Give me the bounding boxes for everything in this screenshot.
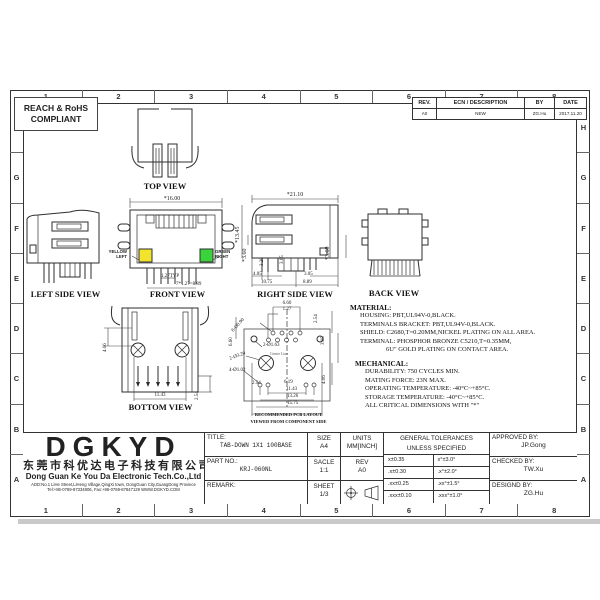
company-name-cn: 东莞市科优达电子科技有限公司 <box>23 460 204 472</box>
pcb-layout-caption-line1: RECOMMENDED PCB LAYOUT <box>226 412 351 417</box>
bottom-view-drawing <box>100 300 222 406</box>
units-value: MM[INCH] <box>341 443 383 450</box>
right-side-view-caption: RIGHT SIDE VIEW <box>240 289 350 299</box>
tolerance-row: .xx±0.25 .xx°±1.5° <box>384 479 489 491</box>
units-cell: UNITS MM[INCH] <box>341 433 383 457</box>
dim-right-320: 3.20 <box>260 257 265 266</box>
company-name-en: Dong Guan Ke You Da Electronic Tech.Co.,… <box>23 472 204 481</box>
by-value: ZG.Hu <box>525 109 555 119</box>
signatures-column: APPROVED BY: JP.Gong CHECKED BY: TW.Xu D… <box>490 433 577 504</box>
title-part-column: TITLE: TAB-DOWN 1X1 100BASE PART NO.: KR… <box>205 433 308 504</box>
checked-cell: CHECKED BY: TW.Xu <box>490 457 577 481</box>
rev-header: REV. <box>413 98 437 108</box>
third-angle-projection-icon <box>342 483 382 503</box>
title-row: TITLE: TAB-DOWN 1X1 100BASE <box>205 433 307 457</box>
led-right-label-line2: RIGHT <box>215 254 242 259</box>
revision-table: REV. ECN / DESCRIPTION BY DATE A0 NEW ZG… <box>412 97 587 120</box>
top-view-drawing <box>125 104 205 184</box>
rev-label: REV <box>341 457 383 466</box>
checked-label: CHECKED BY: <box>490 457 577 465</box>
title-label: TITLE: <box>205 433 307 441</box>
dim-pcb-619: 6.19 <box>284 380 293 385</box>
company-block: DGKYD 东莞市科优达电子科技有限公司 Dong Guan Ke You Da… <box>23 433 205 504</box>
material-line: TERMINALS BRACKET: PBT,UL94V-0,BLACK. <box>350 321 582 330</box>
mechanical-notes: MECHANICAL: DURABILITY: 750 CYCLES MIN. … <box>355 360 583 411</box>
dim-bottom-1143: 11.43 <box>145 393 175 398</box>
back-view-caption: BACK VIEW <box>358 288 430 298</box>
dim-bottom-254: 2.54 <box>195 391 200 400</box>
designed-cell: DESIGND BY: ZG.Hu <box>490 481 577 505</box>
tolerance-cell: .xx°±1.5° <box>434 479 489 490</box>
ecn-value: NEW <box>437 109 525 119</box>
rev-value-cell: A0 <box>341 467 383 474</box>
front-view-drawing <box>112 194 242 296</box>
sheet-value: 1/3 <box>308 491 340 498</box>
rev-cell: REV A0 <box>341 457 383 481</box>
centre-line-label: Centre Line <box>270 352 288 356</box>
dim-right-width: *21.10 <box>265 192 325 198</box>
tolerance-cell: .xxx±0.10 <box>384 491 434 503</box>
date-header: DATE <box>555 98 586 108</box>
mechanical-line: DURABILITY: 750 CYCLES MIN. <box>355 368 583 377</box>
tolerance-cell: .x°±2.0° <box>434 467 489 478</box>
label-pcb-2holes-163: 2-Ø1.63 <box>263 343 280 348</box>
dim-pcb-1575: 15.75 <box>287 401 298 406</box>
units-rev-column: UNITS MM[INCH] REV A0 <box>341 433 384 504</box>
dim-pcb-1326: 13.26 <box>287 394 298 399</box>
remark-row: REMARK: <box>205 481 307 505</box>
border-row-label: G <box>10 153 23 203</box>
dim-pcb-127: 1.27 <box>272 307 302 312</box>
border-row-label: E <box>577 254 590 304</box>
tolerances-column: GENERAL TOLERANCES UNLESS SPECIFIED x±0.… <box>384 433 490 504</box>
approved-label: APPROVED BY: <box>490 433 577 441</box>
back-view-drawing <box>358 202 430 286</box>
dim-front-width: *16.00 <box>142 196 202 202</box>
border-col-label: 4 <box>228 90 301 103</box>
border-col-label: 3 <box>155 504 228 517</box>
dim-bottom-406: 4.06 <box>103 343 108 352</box>
mechanical-line: MATING FORCE: 23N MAX. <box>355 377 583 386</box>
dim-right-365: 3.65 <box>280 255 285 264</box>
size-label: SIZE <box>308 433 340 442</box>
dim-pcb-1143: 11.43 <box>286 387 297 392</box>
dim-pcb-305: 3.05 <box>321 336 326 345</box>
border-row-label: G <box>577 153 590 203</box>
dim-right-360-left: *3.60 <box>242 249 248 263</box>
part-no-value: KRJ-060NL <box>205 466 307 473</box>
border-col-label: 1 <box>10 504 83 517</box>
left-side-view-caption: LEFT SIDE VIEW <box>18 289 113 299</box>
tolerances-header: GENERAL TOLERANCES UNLESS SPECIFIED <box>384 433 489 455</box>
tolerance-row: x±0.35 x°±3.0° <box>384 455 489 467</box>
dim-pcb-660-top: 6.60 <box>272 301 302 306</box>
sheet-shadow <box>18 519 600 524</box>
mechanical-line: OPERATING TEMPERATURE: -40°C~+85°C. <box>355 385 583 394</box>
border-col-label: 3 <box>155 90 228 103</box>
dim-pcb-660-left: 6.60 <box>229 337 234 346</box>
right-side-view-drawing <box>234 192 356 296</box>
material-line: TERMINAL: PHOSPHOR BRONZE C5210,T=0.35MM… <box>350 338 582 347</box>
designed-value: ZG.Hu <box>490 490 577 497</box>
remark-label: REMARK: <box>205 481 307 489</box>
dim-pcb-254-bottom: 2.54 <box>252 381 261 386</box>
compliance-line1: REACH & RoHS <box>24 103 88 114</box>
title-block: DGKYD 东莞市科优达电子科技有限公司 Dong Guan Ke You Da… <box>23 432 577 504</box>
part-no-label: PART NO.: <box>205 457 307 465</box>
engineering-drawing-sheet: 12345678 12345678 HGFEDCBA HGFEDCBA REAC… <box>0 0 600 600</box>
tolerances-header-line1: GENERAL TOLERANCES <box>384 434 489 444</box>
by-header: BY <box>525 98 555 108</box>
led-left-label-line2: LEFT <box>100 254 127 259</box>
revision-data-row: A0 NEW ZG.Hu 2017.11.20 <box>413 109 586 119</box>
scale-value: 1:1 <box>308 467 340 474</box>
size-value: A4 <box>308 443 340 450</box>
designed-label: DESIGND BY: <box>490 481 577 489</box>
scale-cell: SACLE 1:1 <box>308 457 340 481</box>
company-logo: DGKYD <box>23 434 204 460</box>
tolerance-row: .x±0.30 .x°±2.0° <box>384 467 489 479</box>
sheet-cell: SHEET 1/3 <box>308 481 340 505</box>
border-rows-left: HGFEDCBA <box>10 103 23 504</box>
projection-symbol-cell <box>341 481 383 505</box>
compliance-stamp: REACH & RoHS COMPLIANT <box>14 97 98 131</box>
bottom-view-caption: BOTTOM VIEW <box>108 402 213 412</box>
dim-right-1075: 10.75 <box>261 280 272 285</box>
tolerance-cell: x°±3.0° <box>434 455 489 466</box>
label-pcb-4holes-102: 4-Ø1.02 <box>229 368 246 373</box>
material-notes: MATERIAL: HOUSING: PBT,UL94V-0,BLACK. TE… <box>350 304 582 355</box>
mechanical-line: ALL CRITICAL DIMENSIONS WITH "*" <box>355 402 583 411</box>
mechanical-line: STORAGE TEMPERATURE: -40°C~+85°C. <box>355 394 583 403</box>
border-row-label: C <box>10 354 23 404</box>
led-left-label: YELLOW LEFT <box>100 249 127 259</box>
border-col-label: 8 <box>518 504 590 517</box>
dim-front-pitch: 1.27TYP <box>161 274 179 279</box>
dim-right-height: *13.45 <box>235 227 241 244</box>
sheet-label: SHEET <box>308 481 340 490</box>
tolerance-cell: x±0.35 <box>384 455 434 466</box>
left-side-view-drawing <box>18 203 113 288</box>
top-view-caption: TOP VIEW <box>125 181 205 191</box>
dim-front-span: 7*1.27=8.89 <box>176 282 201 287</box>
material-heading: MATERIAL: <box>350 304 582 312</box>
border-row-label: B <box>577 405 590 455</box>
title-value: TAB-DOWN 1X1 100BASE <box>205 442 307 449</box>
border-col-label: 4 <box>228 504 301 517</box>
ecn-header: ECN / DESCRIPTION <box>437 98 525 108</box>
border-col-label: 2 <box>83 504 156 517</box>
scale-label: SACLE <box>308 457 340 466</box>
material-line: 6U" GOLD PLATING ON CONTACT AREA. <box>350 346 582 355</box>
revision-header-row: REV. ECN / DESCRIPTION BY DATE <box>413 98 586 109</box>
border-row-label: F <box>577 204 590 254</box>
checked-value: TW.Xu <box>490 466 577 473</box>
tolerance-cell: .x±0.30 <box>384 467 434 478</box>
border-col-label: 5 <box>301 504 374 517</box>
tolerance-cell: .xxx°±1.0° <box>434 491 489 503</box>
led-right-label: GREEN RIGHT <box>215 249 242 259</box>
dim-right-305: 3.05 <box>304 272 313 277</box>
company-contact: Tel:+86-0769-87334806, Fax:+86-0769-8784… <box>23 487 204 492</box>
rev-value: A0 <box>413 109 437 119</box>
approved-cell: APPROVED BY: JP.Gong <box>490 433 577 457</box>
dim-right-360-right: *3.60 <box>325 247 331 261</box>
dim-right-405: 4.05 <box>253 272 262 277</box>
border-row-label: D <box>10 304 23 354</box>
units-label: UNITS <box>341 433 383 442</box>
date-value: 2017.11.20 <box>555 109 586 119</box>
border-row-label: B <box>10 405 23 455</box>
dim-pcb-406: 4.06 <box>322 375 327 384</box>
tolerance-row: .xxx±0.10 .xxx°±1.0° <box>384 491 489 503</box>
material-line: HOUSING: PBT,UL94V-0,BLACK. <box>350 312 582 321</box>
tolerances-header-line2: UNLESS SPECIFIED <box>384 444 489 454</box>
pcb-layout-caption-line2: VIEWED FROM COMPONENT SIDE <box>226 419 351 424</box>
border-row-label: A <box>10 455 23 504</box>
border-col-label: 6 <box>373 504 446 517</box>
size-cell: SIZE A4 <box>308 433 340 457</box>
part-no-row: PART NO.: KRJ-060NL <box>205 457 307 481</box>
dim-right-889: 8.89 <box>303 280 312 285</box>
dim-pcb-254-right: 2.54 <box>314 314 319 323</box>
border-col-label: 5 <box>301 90 374 103</box>
border-row-label: A <box>577 455 590 504</box>
compliance-line2: COMPLIANT <box>31 114 82 125</box>
approved-value: JP.Gong <box>490 442 577 449</box>
tolerance-cell: .xx±0.25 <box>384 479 434 490</box>
front-view-caption: FRONT VIEW <box>130 289 225 299</box>
mechanical-heading: MECHANICAL: <box>355 360 583 368</box>
material-line: SHIELD: C2680,T=0.20MM,NICKEL PLATING ON… <box>350 329 582 338</box>
size-scale-sheet-column: SIZE A4 SACLE 1:1 SHEET 1/3 <box>308 433 341 504</box>
border-col-label: 7 <box>446 504 519 517</box>
border-columns-bottom: 12345678 <box>10 504 590 517</box>
